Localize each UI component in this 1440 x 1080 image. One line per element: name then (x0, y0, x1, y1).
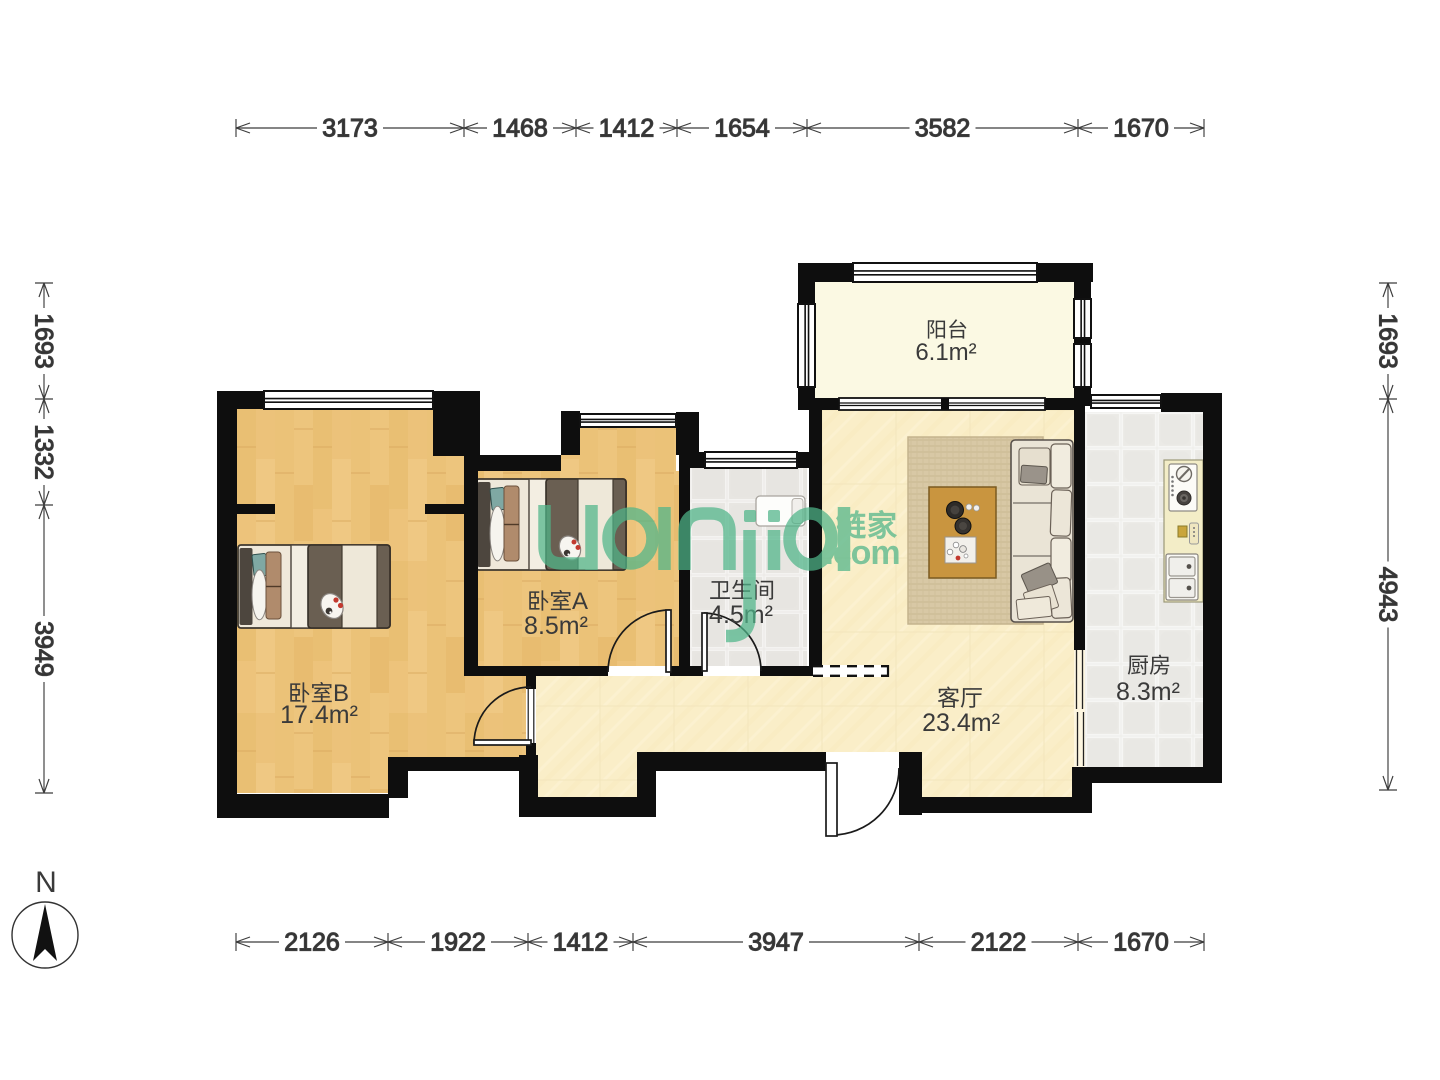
svg-text:6.1m²: 6.1m² (915, 339, 976, 366)
svg-text:1693: 1693 (30, 313, 58, 369)
svg-text:1922: 1922 (430, 929, 486, 957)
svg-text:1412: 1412 (553, 929, 609, 957)
svg-text:1670: 1670 (1113, 115, 1169, 143)
svg-text:N: N (35, 866, 57, 899)
svg-text:8.3m²: 8.3m² (1116, 678, 1180, 706)
svg-text:.com: .com (824, 534, 899, 572)
svg-text:4.5m²: 4.5m² (709, 601, 773, 629)
svg-text:17.4m²: 17.4m² (280, 701, 358, 729)
svg-text:1468: 1468 (492, 115, 548, 143)
svg-text:1693: 1693 (1374, 313, 1402, 369)
svg-text:4943: 4943 (1374, 567, 1402, 623)
svg-text:3947: 3947 (748, 929, 804, 957)
svg-text:2126: 2126 (284, 929, 340, 957)
svg-text:1332: 1332 (30, 424, 58, 480)
svg-text:A: A (572, 588, 588, 615)
svg-text:1412: 1412 (599, 115, 655, 143)
svg-text:3582: 3582 (915, 115, 971, 143)
svg-text:3173: 3173 (322, 115, 378, 143)
svg-text:2122: 2122 (971, 929, 1027, 957)
svg-text:3949: 3949 (30, 621, 58, 677)
svg-text:23.4m²: 23.4m² (922, 709, 1000, 737)
svg-text:1654: 1654 (714, 115, 770, 143)
svg-text:1670: 1670 (1113, 929, 1169, 957)
svg-text:8.5m²: 8.5m² (524, 612, 588, 640)
